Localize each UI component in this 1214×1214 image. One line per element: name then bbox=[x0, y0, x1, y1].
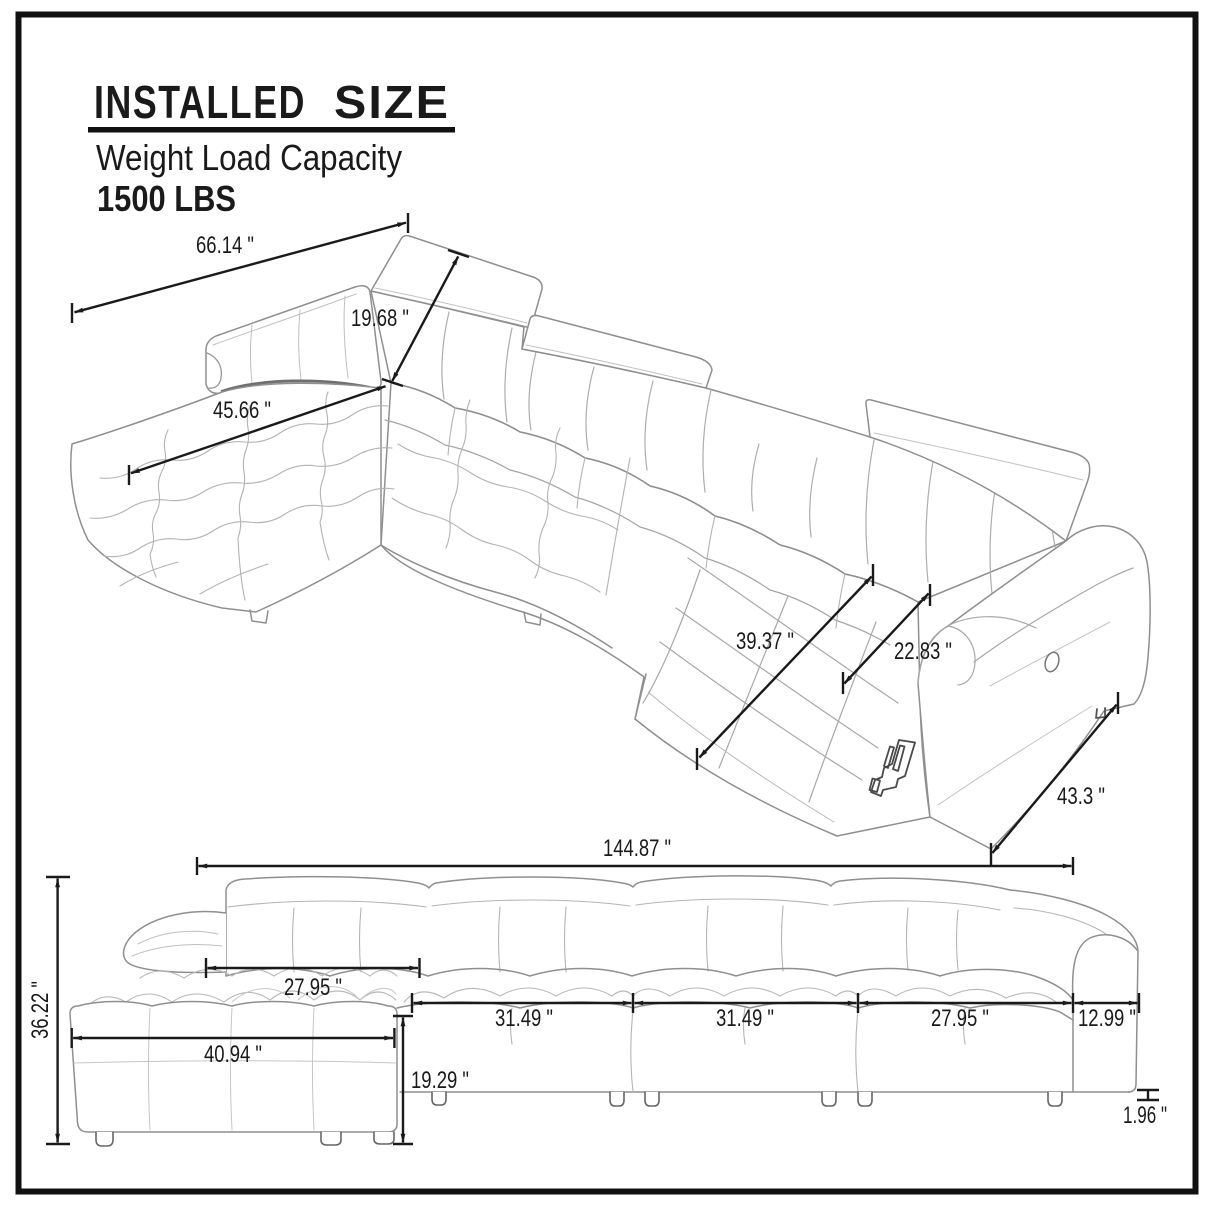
svg-text:43.3 ": 43.3 " bbox=[1057, 783, 1105, 810]
svg-text:19.29 ": 19.29 " bbox=[411, 1067, 469, 1094]
svg-text:45.66 ": 45.66 " bbox=[213, 397, 271, 424]
svg-text:12.99 ": 12.99 " bbox=[1078, 1005, 1136, 1032]
svg-text:1500 LBS: 1500 LBS bbox=[97, 178, 236, 219]
svg-text:27.95 ": 27.95 " bbox=[284, 974, 342, 1001]
svg-text:Weight Load Capacity: Weight Load Capacity bbox=[96, 137, 402, 178]
svg-text:19.68 ": 19.68 " bbox=[351, 305, 409, 332]
svg-text:39.37 ": 39.37 " bbox=[736, 628, 794, 655]
svg-text:144.87 ": 144.87 " bbox=[603, 835, 671, 862]
svg-text:66.14 ": 66.14 " bbox=[196, 232, 254, 259]
svg-text:22.83 ": 22.83 " bbox=[894, 638, 952, 665]
svg-text:INSTALLED: INSTALLED bbox=[94, 76, 306, 128]
svg-text:31.49 ": 31.49 " bbox=[716, 1005, 774, 1032]
svg-text:27.95 ": 27.95 " bbox=[931, 1005, 989, 1032]
svg-text:36.22 ": 36.22 " bbox=[27, 981, 54, 1039]
svg-text:40.94 ": 40.94 " bbox=[204, 1041, 262, 1068]
svg-text:31.49 ": 31.49 " bbox=[495, 1005, 553, 1032]
svg-text:1.96 ": 1.96 " bbox=[1123, 1102, 1167, 1129]
svg-text:SIZE: SIZE bbox=[334, 76, 450, 128]
